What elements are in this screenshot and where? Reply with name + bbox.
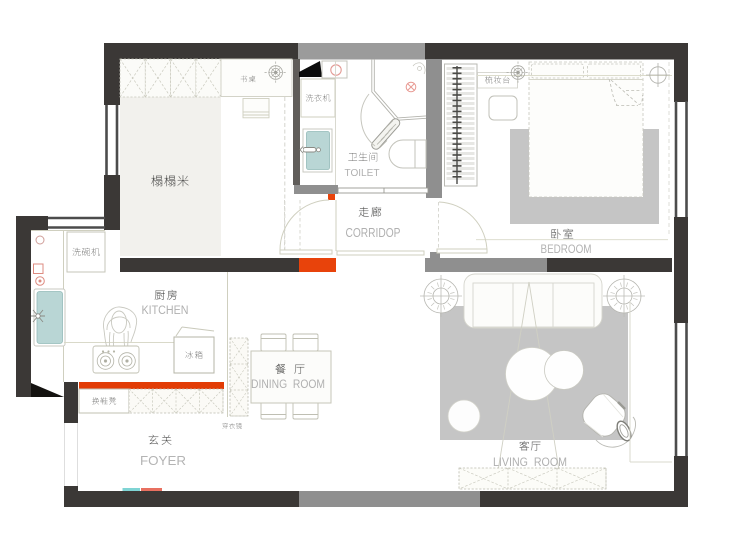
svg-text:FOYER: FOYER: [140, 453, 186, 468]
svg-text:CORRIDOP: CORRIDOP: [346, 226, 401, 240]
svg-text:KITCHEN: KITCHEN: [142, 305, 189, 317]
svg-text:LIVING ROOM: LIVING ROOM: [493, 455, 567, 469]
svg-text:DINING ROOM: DINING ROOM: [251, 379, 325, 391]
svg-text:BEDROOM: BEDROOM: [541, 242, 592, 256]
svg-text:TOILET: TOILET: [345, 167, 381, 179]
